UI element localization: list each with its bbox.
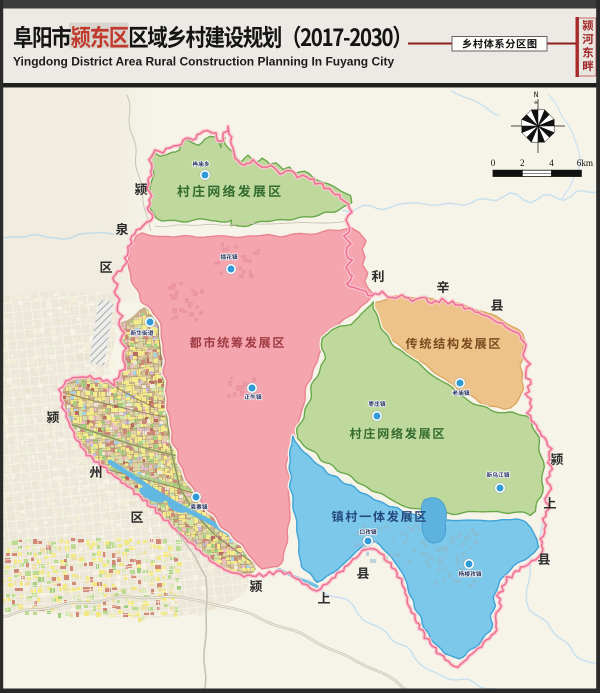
- svg-text:4: 4: [549, 158, 554, 168]
- svg-text:2: 2: [520, 158, 525, 168]
- svg-text:N: N: [534, 91, 539, 100]
- svg-text:≋: ≋: [534, 100, 538, 106]
- svg-text:0: 0: [491, 158, 496, 168]
- svg-text:Yingdong District Area Rural C: Yingdong District Area Rural Constructio…: [13, 55, 394, 69]
- svg-text:6km: 6km: [577, 158, 593, 168]
